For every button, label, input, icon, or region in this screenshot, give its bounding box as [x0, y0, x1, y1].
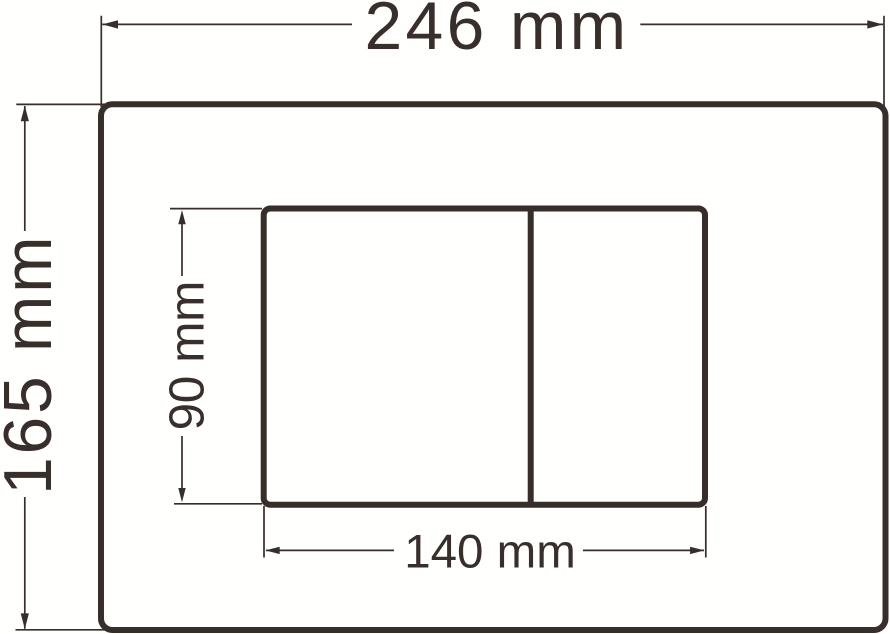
- svg-text:165 mm: 165 mm: [0, 234, 66, 495]
- svg-text:246 mm: 246 mm: [364, 0, 629, 64]
- svg-text:90 mm: 90 mm: [160, 281, 215, 430]
- svg-text:140 mm: 140 mm: [404, 526, 576, 579]
